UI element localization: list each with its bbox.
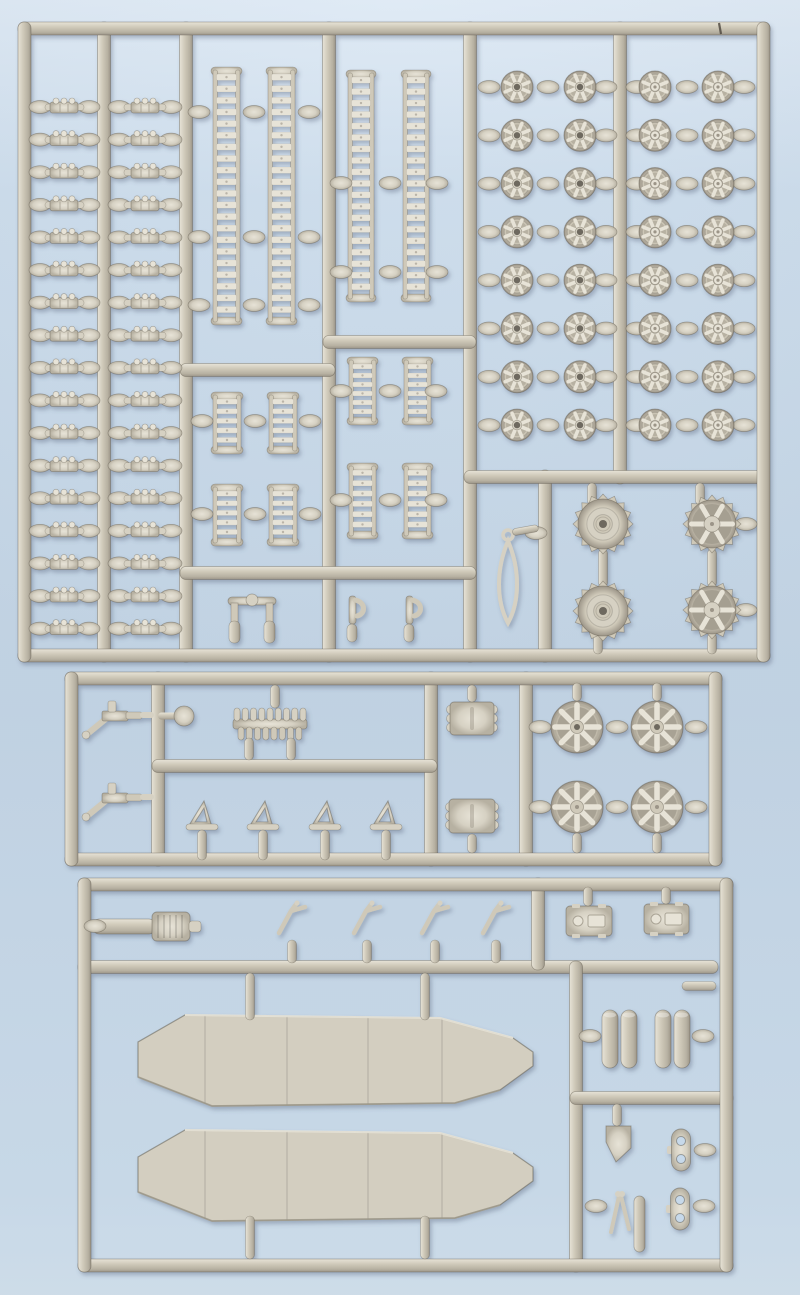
sprue-top xyxy=(18,22,770,662)
sprue-bottom xyxy=(78,878,733,1272)
sprue-middle xyxy=(65,672,722,866)
photo-canvas xyxy=(0,0,800,1295)
sprue-photo xyxy=(0,0,800,1295)
